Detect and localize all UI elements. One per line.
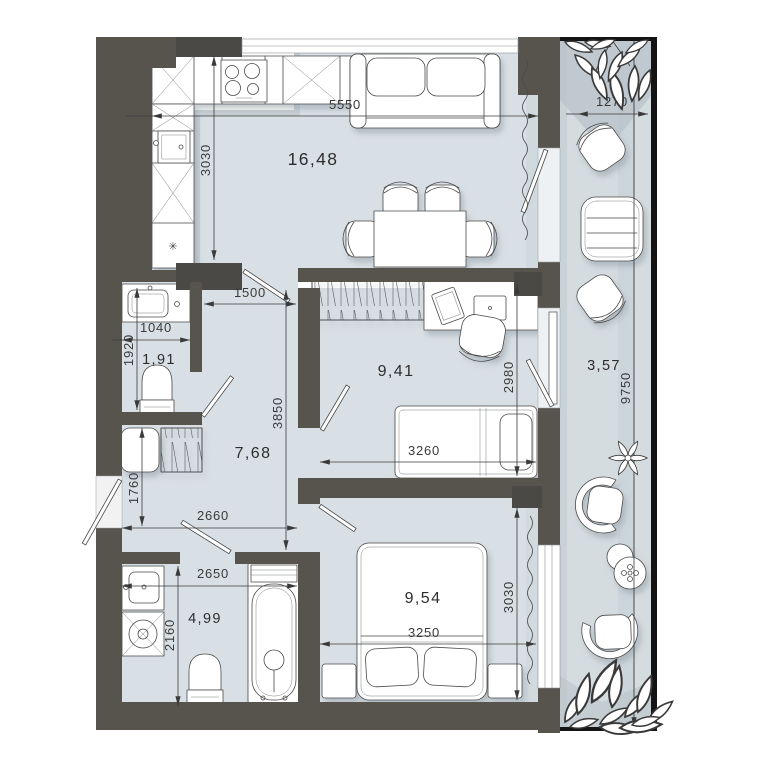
wall-left <box>96 270 122 476</box>
label-balcony-area: 3,57 <box>587 358 621 374</box>
wall-room-bottom <box>302 478 542 498</box>
bathtub <box>248 562 300 704</box>
svg-text:3030: 3030 <box>198 144 213 176</box>
svg-text:2660: 2660 <box>197 508 229 523</box>
pillow <box>423 647 477 688</box>
wall-bottom <box>96 702 560 730</box>
svg-text:3250: 3250 <box>408 625 440 640</box>
hall-cabinet <box>121 428 159 472</box>
wall-left-kitchen <box>96 37 152 270</box>
wall-bath-top-left <box>96 552 180 564</box>
floor-edge-shadow <box>194 110 300 116</box>
svg-text:2980: 2980 <box>501 361 516 393</box>
svg-text:9750: 9750 <box>618 372 633 404</box>
wall-balcony-1 <box>538 95 560 148</box>
svg-text:1760: 1760 <box>126 472 141 504</box>
svg-text:1500: 1500 <box>234 285 266 300</box>
wall-bath-top-right <box>235 552 298 564</box>
svg-text:1920: 1920 <box>121 334 136 366</box>
svg-text:1040: 1040 <box>140 320 172 335</box>
floor-edge-shadow <box>194 116 200 268</box>
wall-shadow <box>526 498 538 702</box>
exterior-line-right <box>651 37 657 731</box>
wall-balcony-3 <box>538 408 560 545</box>
svg-text:3850: 3850 <box>270 397 285 429</box>
wall-top-corner <box>96 37 176 68</box>
stove <box>221 60 267 102</box>
label-room-area: 9,41 <box>378 363 415 380</box>
hall-wardrobe <box>161 428 202 472</box>
floor-plan-drawing: 5550 3030 1270 1500 1040 1920 3850 <box>0 0 768 768</box>
room-wardrobe <box>312 280 424 320</box>
bath-toilet <box>187 654 223 704</box>
svg-text:2650: 2650 <box>197 566 229 581</box>
window-bedroom <box>538 545 560 688</box>
wall-hall-room <box>298 288 320 428</box>
wall-wc-right <box>190 282 202 372</box>
balcony-wall-shadow <box>560 41 567 727</box>
label-wc-area: 1,91 <box>142 352 176 368</box>
single-bed <box>395 406 537 478</box>
wall-top-right <box>518 37 560 95</box>
label-kitchen-living-area: 16,48 <box>288 149 339 169</box>
svg-text:3030: 3030 <box>501 581 516 613</box>
kitchen-sink <box>154 131 191 163</box>
label-bedroom-area: 9,54 <box>405 590 442 607</box>
svg-text:5550: 5550 <box>329 97 361 112</box>
double-bed <box>357 543 487 700</box>
svg-text:2160: 2160 <box>162 619 177 651</box>
pillow <box>365 647 419 688</box>
washing-machine <box>122 612 164 656</box>
svg-text:3260: 3260 <box>408 443 440 458</box>
label-bathroom-area: 4,99 <box>188 611 222 627</box>
fridge-snowflake-icon: ✳ <box>168 241 177 253</box>
wc-toilet <box>140 365 174 414</box>
wall-pier-bedroom <box>512 486 542 508</box>
floor-plan-canvas: 5550 3030 1270 1500 1040 1920 3850 <box>0 0 768 768</box>
wall-pier-room <box>514 272 542 296</box>
label-hallway-area: 7,68 <box>235 445 272 462</box>
wall-wc-bottom <box>96 412 202 425</box>
sofa <box>350 54 500 128</box>
bath-sink <box>129 572 159 603</box>
nightstand <box>322 664 356 698</box>
wall-top-pier <box>176 37 242 57</box>
wall-room-top <box>298 268 542 282</box>
dining-table <box>374 211 466 267</box>
wall-pier-hall <box>176 263 242 290</box>
hall-storage <box>121 428 202 472</box>
wall-bath-right <box>298 552 320 702</box>
balcony-door-room-panel <box>549 312 557 404</box>
